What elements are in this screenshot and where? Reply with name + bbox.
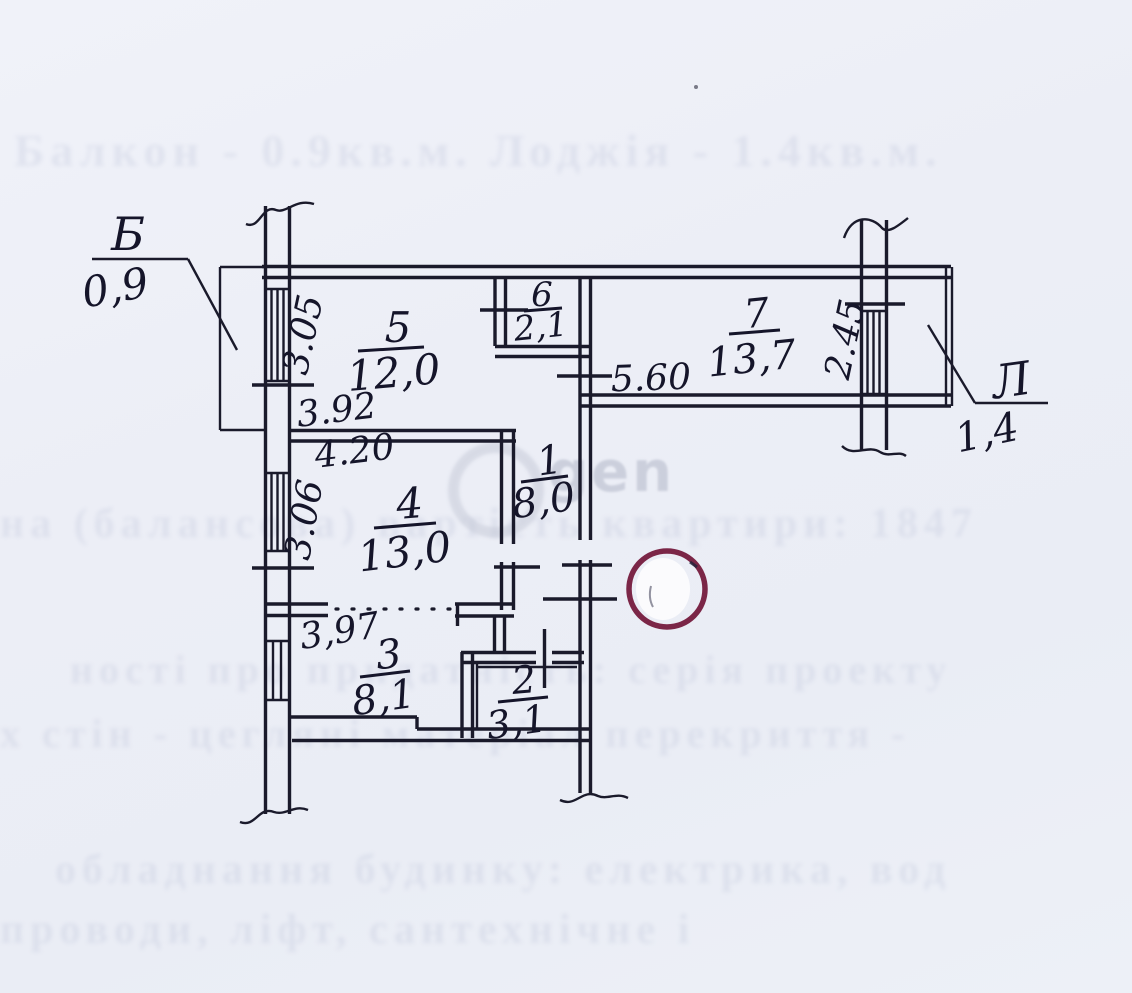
room5-number: 5 [385,303,412,352]
room2-number: 2 [509,657,538,703]
wall-room4-right [502,429,514,610]
ink-speck [694,85,698,89]
room4-label: 4 13,0 [355,478,454,582]
window-room3 [266,641,289,700]
dim-3-97: 3,97 [297,605,383,658]
scanned-floor-plan-page: Балкон - 0.9кв.м. Лоджія - 1.4кв.м. на (… [0,0,1132,993]
balcony-outline [220,267,265,430]
loggia-outline [946,267,952,406]
room3-area: 8,1 [349,671,418,725]
room1-label: 1 8,0 [509,436,578,528]
room4-number: 4 [393,478,425,529]
break-squiggle-left-top [246,203,314,225]
room6-label: 6 2,1 [511,275,570,350]
dim-2-45: 2.45 [817,296,874,384]
wall-top-outer [262,267,951,278]
break-squiggle-center-bottom [560,794,628,802]
floor-plan-drawing: Б 0,9 Л 1,4 5 12,0 6 2,1 7 13,7 [0,0,1132,993]
stamp-whiteout-blob [636,558,690,620]
room7-area: 13,7 [705,331,799,386]
dim-3-06: 3.06 [277,477,331,563]
room4-area: 13,0 [355,522,454,582]
break-squiggle-loggia-bottom [842,446,906,456]
break-squiggle-loggia-top [844,218,908,238]
room6-area: 2,1 [511,304,570,350]
wall-niche [455,604,514,652]
loggia-letter: Л [986,350,1035,409]
dim-4-20: 4.20 [311,426,397,477]
balcony-letter: Б [110,207,145,261]
room2-label: 2 3,1 [484,657,550,748]
balcony-area: 0,9 [78,258,152,318]
stamp [629,551,705,627]
wall-central-corridor [580,277,591,793]
break-squiggle-left-bottom [240,808,308,823]
loggia-area: 1,4 [951,404,1023,462]
dim-3-92: 3.92 [294,385,379,435]
dim-5-60: 5.60 [610,357,692,401]
room7-label: 7 13,7 [705,290,799,387]
room2-area: 3,1 [484,696,550,748]
room1-area: 8,0 [509,474,578,528]
wall-room6-bottom [495,347,591,357]
